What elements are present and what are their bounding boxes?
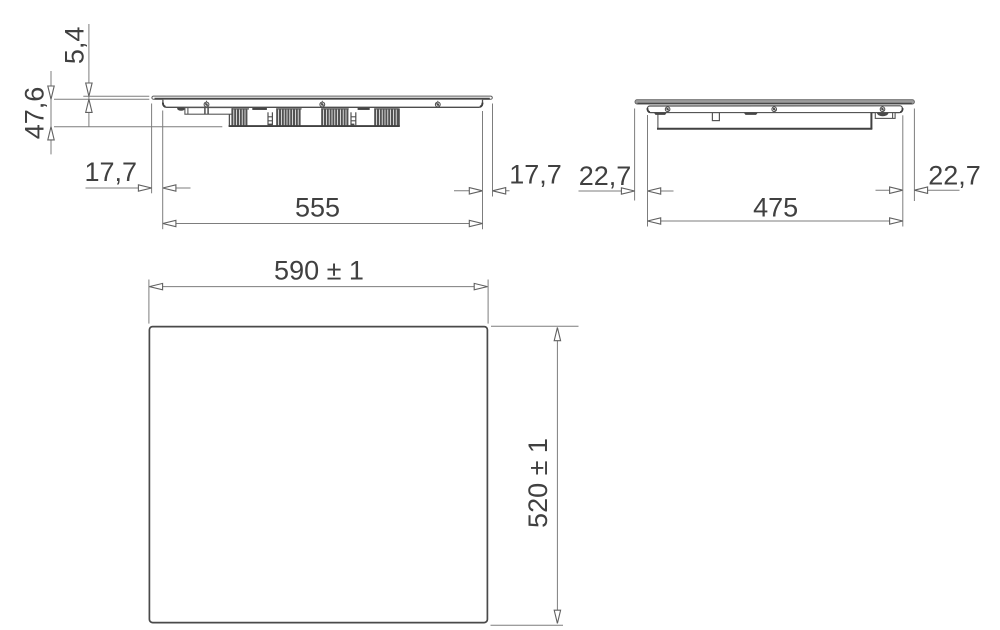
svg-text:555: 555 <box>295 193 340 223</box>
svg-text:22,7: 22,7 <box>579 161 632 191</box>
svg-text:475: 475 <box>753 193 798 223</box>
svg-text:17,7: 17,7 <box>85 157 138 187</box>
svg-text:17,7: 17,7 <box>509 160 562 190</box>
svg-text:47,6: 47,6 <box>20 87 50 140</box>
svg-text:5,4: 5,4 <box>60 27 90 65</box>
svg-text:590 ± 1: 590 ± 1 <box>274 256 364 286</box>
svg-text:520 ± 1: 520 ± 1 <box>523 438 553 528</box>
svg-text:22,7: 22,7 <box>928 161 981 191</box>
